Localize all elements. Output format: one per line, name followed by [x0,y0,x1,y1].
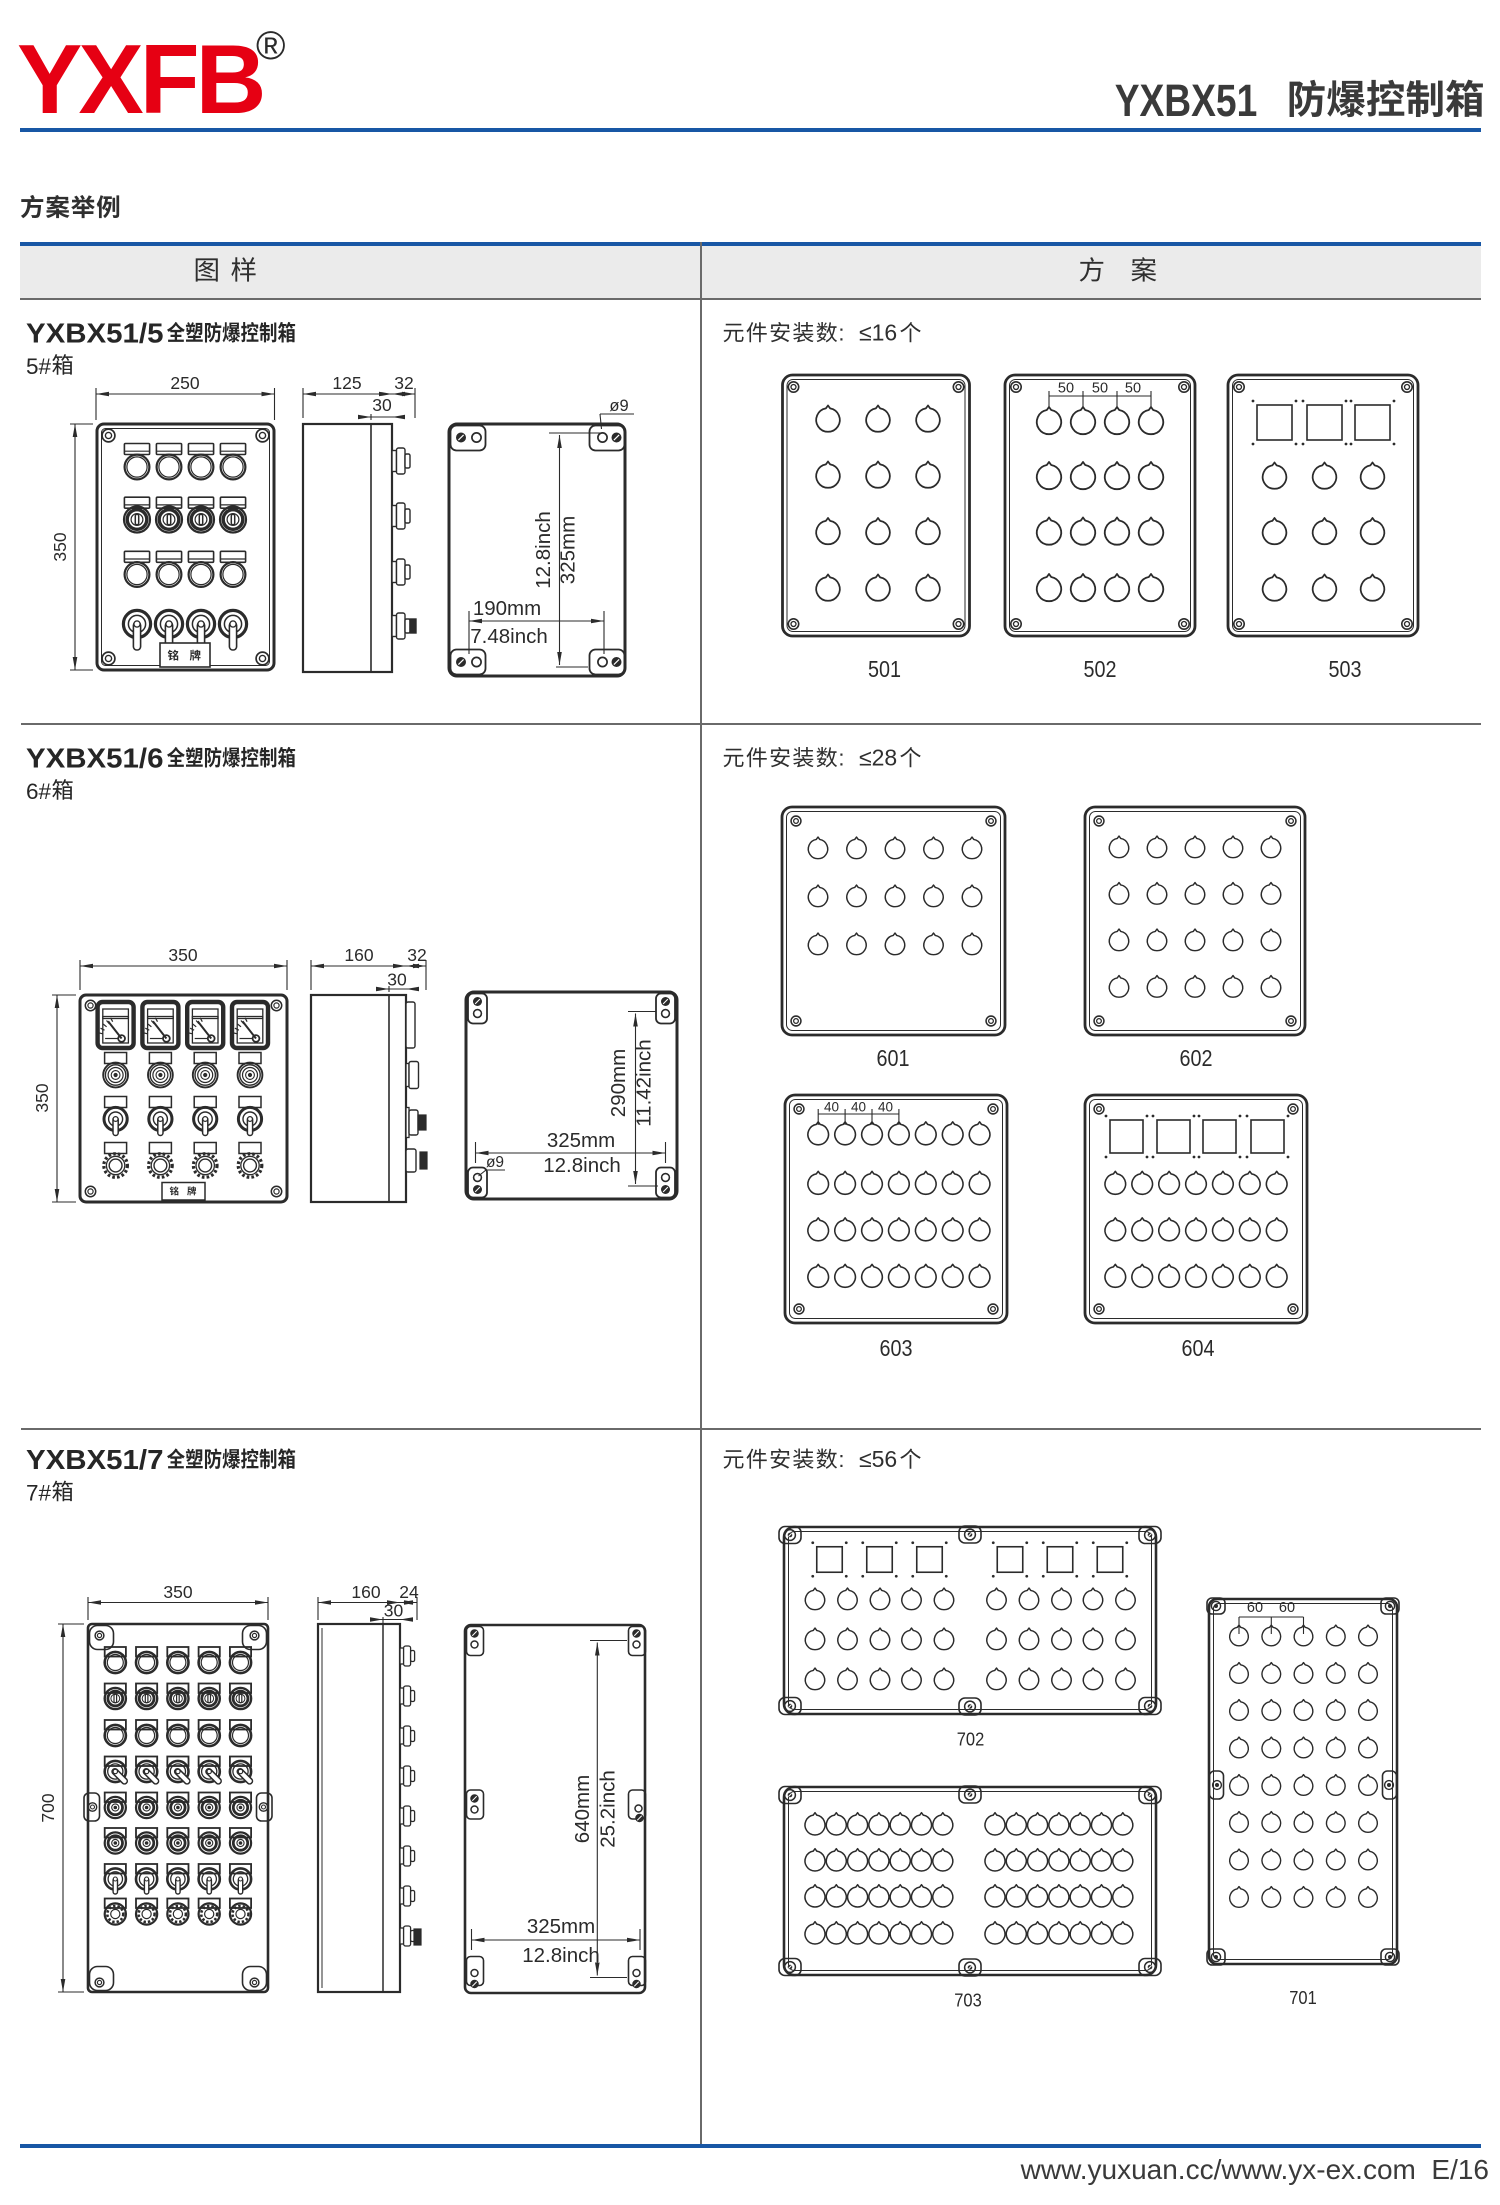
svg-text:602: 602 [1180,1045,1213,1071]
svg-text:350: 350 [163,1582,192,1602]
svg-text:30: 30 [387,970,407,990]
svg-text:125: 125 [332,373,361,393]
svg-text::: : [838,746,844,771]
svg-text:40: 40 [851,1100,866,1115]
svg-text:60: 60 [1247,1600,1263,1616]
svg-text:6#: 6# [26,779,52,804]
svg-text:7.48inch: 7.48inch [470,625,548,648]
svg-text:30: 30 [372,395,392,415]
svg-text:12.8inch: 12.8inch [532,511,555,589]
svg-text:350: 350 [50,532,70,561]
svg-text:50: 50 [1092,381,1108,397]
svg-text:160: 160 [351,1582,380,1602]
svg-text:190mm: 190mm [473,597,541,620]
svg-text:290mm: 290mm [607,1049,630,1117]
svg-text:701: 701 [1289,1987,1317,2008]
svg-text:640mm: 640mm [571,1775,594,1843]
svg-text:700: 700 [38,1793,58,1822]
svg-text:250: 250 [170,373,199,393]
svg-text:YXBX51: YXBX51 [1115,75,1258,126]
svg-text:YXBX51/5: YXBX51/5 [26,318,164,349]
svg-text:501: 501 [868,656,901,682]
svg-text:12.8inch: 12.8inch [543,1154,621,1177]
svg-text:601: 601 [877,1045,910,1071]
svg-text:40: 40 [878,1100,893,1115]
svg-text:325mm: 325mm [527,1915,595,1938]
svg-text:25.2inch: 25.2inch [597,1770,620,1848]
svg-text:50: 50 [1058,381,1074,397]
svg-text:ø9: ø9 [486,1154,504,1171]
svg-text:ø9: ø9 [609,397,628,415]
svg-text:60: 60 [1279,1600,1295,1616]
svg-text:24: 24 [399,1582,419,1602]
svg-text:11.42inch: 11.42inch [633,1039,656,1126]
svg-text:YXBX51/6: YXBX51/6 [26,743,164,774]
svg-text:12.8inch: 12.8inch [522,1944,600,1967]
svg-text:325mm: 325mm [557,516,580,584]
svg-text:325mm: 325mm [547,1129,615,1152]
svg-text:30: 30 [384,1601,404,1621]
svg-text:40: 40 [824,1100,839,1115]
svg-text:32: 32 [407,945,426,965]
svg-text:≤28: ≤28 [859,745,897,771]
svg-text:7#: 7# [26,1481,52,1506]
svg-text:50: 50 [1125,381,1141,397]
svg-text:160: 160 [344,945,373,965]
svg-text:604: 604 [1182,1335,1215,1361]
svg-text:≤56: ≤56 [859,1446,897,1472]
svg-text:32: 32 [394,373,413,393]
svg-text:603: 603 [880,1335,913,1361]
svg-text:503: 503 [1329,656,1362,682]
svg-text:YXBX51/7: YXBX51/7 [26,1444,164,1475]
svg-text:502: 502 [1084,656,1117,682]
svg-text:702: 702 [957,1729,985,1750]
svg-text:350: 350 [32,1083,52,1112]
svg-text::: : [838,1447,844,1472]
svg-text:703: 703 [954,1990,982,2011]
svg-text:350: 350 [168,945,197,965]
